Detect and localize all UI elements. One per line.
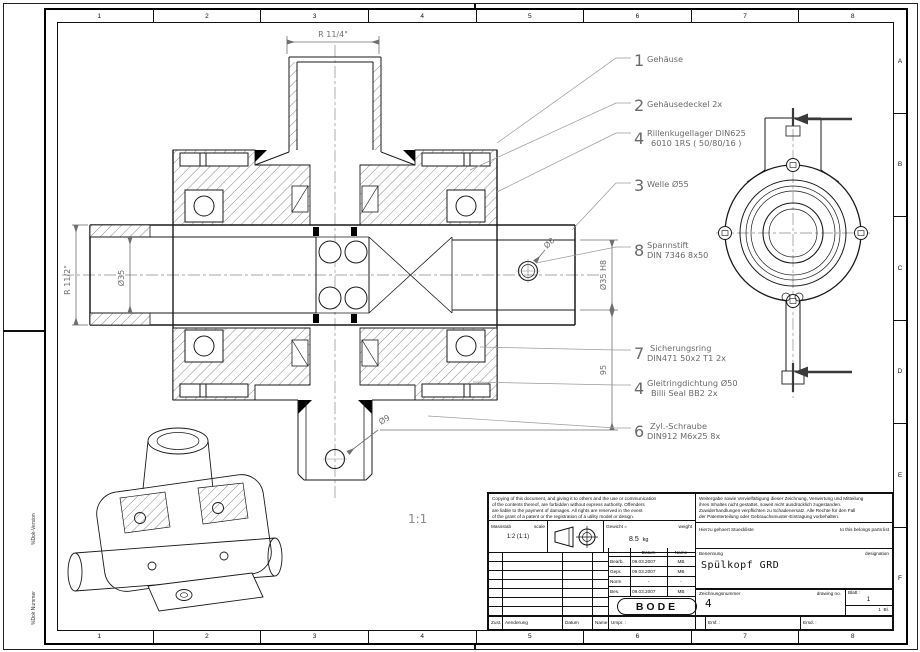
- scale-value: 1:2 (1:1): [489, 534, 547, 540]
- approval-row-label: Gepr.: [610, 569, 621, 575]
- callout-labels: 1 Gehäuse 2 Gehäusedeckel 2x 4 Rillenkug…: [634, 51, 746, 441]
- callout-text: DIN912 M6x25 8x: [647, 431, 720, 441]
- designation-label-en: designation: [789, 551, 889, 557]
- callout-text: Spannstift: [647, 240, 689, 250]
- weight-label-de: Gewicht =: [606, 524, 627, 530]
- dim-bore-left: Ø35: [116, 270, 126, 286]
- revision-name-label: Name: [595, 620, 608, 626]
- dim-left-radius: R 11/2": [63, 265, 72, 295]
- callout-text: Gleitringdichtung Ø50: [647, 378, 738, 388]
- approval-header-name: Name: [667, 550, 695, 556]
- designation-value: Spülkopf GRD: [701, 560, 779, 571]
- revision-urspr-label: Urspr. :: [611, 620, 626, 626]
- parts-list-note-en: to this belongs parts list: [789, 527, 889, 533]
- dim-bore-right: Ø35 H8: [598, 260, 608, 290]
- dim-length: 95: [599, 365, 608, 375]
- callout-text: Billi Seal BB2 2x: [651, 388, 718, 398]
- callout-text: Gehäuse: [647, 54, 683, 64]
- callout-text: Welle Ø55: [647, 179, 689, 189]
- callout-number: 1: [634, 51, 644, 70]
- sheet-label: Blatt :: [848, 590, 860, 596]
- approval-row-name: -: [667, 579, 695, 585]
- approval-row-label: Bes.: [610, 589, 619, 595]
- designation-label-de: Benennung: [699, 551, 723, 557]
- callout-number: 6: [634, 422, 644, 441]
- drawing-sheet: 1 2 3 4 5 6 7 8 1 2 3 4 5 6 7 8 A B C D …: [0, 0, 920, 652]
- callout-number: 7: [634, 344, 644, 363]
- isometric-view: [68, 428, 282, 611]
- callout-text: DIN 7346 8x50: [647, 250, 708, 260]
- callout-text: Gehäusedeckel 2x: [647, 99, 722, 109]
- revision-ersd-label: Ersd. :: [803, 620, 817, 626]
- legal-notice-de: Weitergabe sowie Vervielfältigung dieser…: [699, 496, 863, 520]
- view-scale-note: 1:1: [408, 512, 427, 526]
- callout-text: Sicherungsring: [650, 343, 711, 353]
- projection-symbol-icon: [549, 524, 601, 550]
- revision-datum-label: Datum: [565, 620, 579, 626]
- approval-row-name: MB: [667, 589, 695, 595]
- legal-notice-en: Copying of this document, and giving it …: [492, 496, 656, 520]
- callout-text: Zyl.-Schraube: [650, 421, 707, 431]
- approval-row-date: 09.03.2007: [632, 589, 655, 595]
- callout-number: 4: [634, 129, 644, 148]
- scale-label-de: Massstab: [491, 524, 511, 530]
- callout-number: 8: [634, 241, 644, 260]
- weight-value: 8.5 kg: [629, 536, 648, 543]
- approval-row-name: MB: [667, 559, 695, 565]
- callout-number: 2: [634, 96, 644, 115]
- scale-label-en: scale: [519, 524, 545, 530]
- dim-hole: Ø9: [377, 412, 392, 427]
- approval-header-date: Datum: [630, 550, 667, 556]
- dim-pin: Ø8: [541, 235, 556, 250]
- revision-aenderung-label: Aenderung: [505, 620, 528, 626]
- sheet-value: 1: [845, 597, 892, 603]
- drawing-no-label-en: drawing no.: [789, 591, 841, 597]
- centerlines: [62, 45, 870, 500]
- dim-top-radius: R 11/4": [318, 30, 348, 39]
- revision-ersf-label: Ersf. :: [708, 620, 720, 626]
- title-block: Copying of this document, and giving it …: [487, 492, 894, 631]
- drawing-no-value: 4: [705, 597, 712, 610]
- approval-row-label: Bearb.: [610, 559, 624, 565]
- revision-zust-label: Zust.: [491, 620, 501, 626]
- approval-row-date: -: [632, 579, 665, 585]
- callout-text: Rillenkugellager DIN625: [647, 128, 746, 138]
- callout-text: DIN471 50x2 T1 2x: [647, 353, 726, 363]
- callout-number: 4: [634, 379, 644, 398]
- weight-label-en: weight: [659, 524, 692, 530]
- approval-row-label: Norm: [610, 579, 621, 585]
- callout-text: 6010 1RS ( 50/80/16 ): [651, 138, 742, 148]
- callout-number: 3: [634, 176, 644, 195]
- parts-list-note-de: Hierzu gehoert Stueckliste: [699, 527, 754, 533]
- company-logo: BODE: [617, 598, 697, 615]
- approval-row-date: 09.03.2007: [632, 569, 655, 575]
- sheet-count: 1 Bl.: [845, 607, 889, 612]
- approval-row-date: 09.03.2007: [632, 559, 655, 565]
- section-view: [90, 57, 575, 480]
- approval-row-name: MB: [667, 569, 695, 575]
